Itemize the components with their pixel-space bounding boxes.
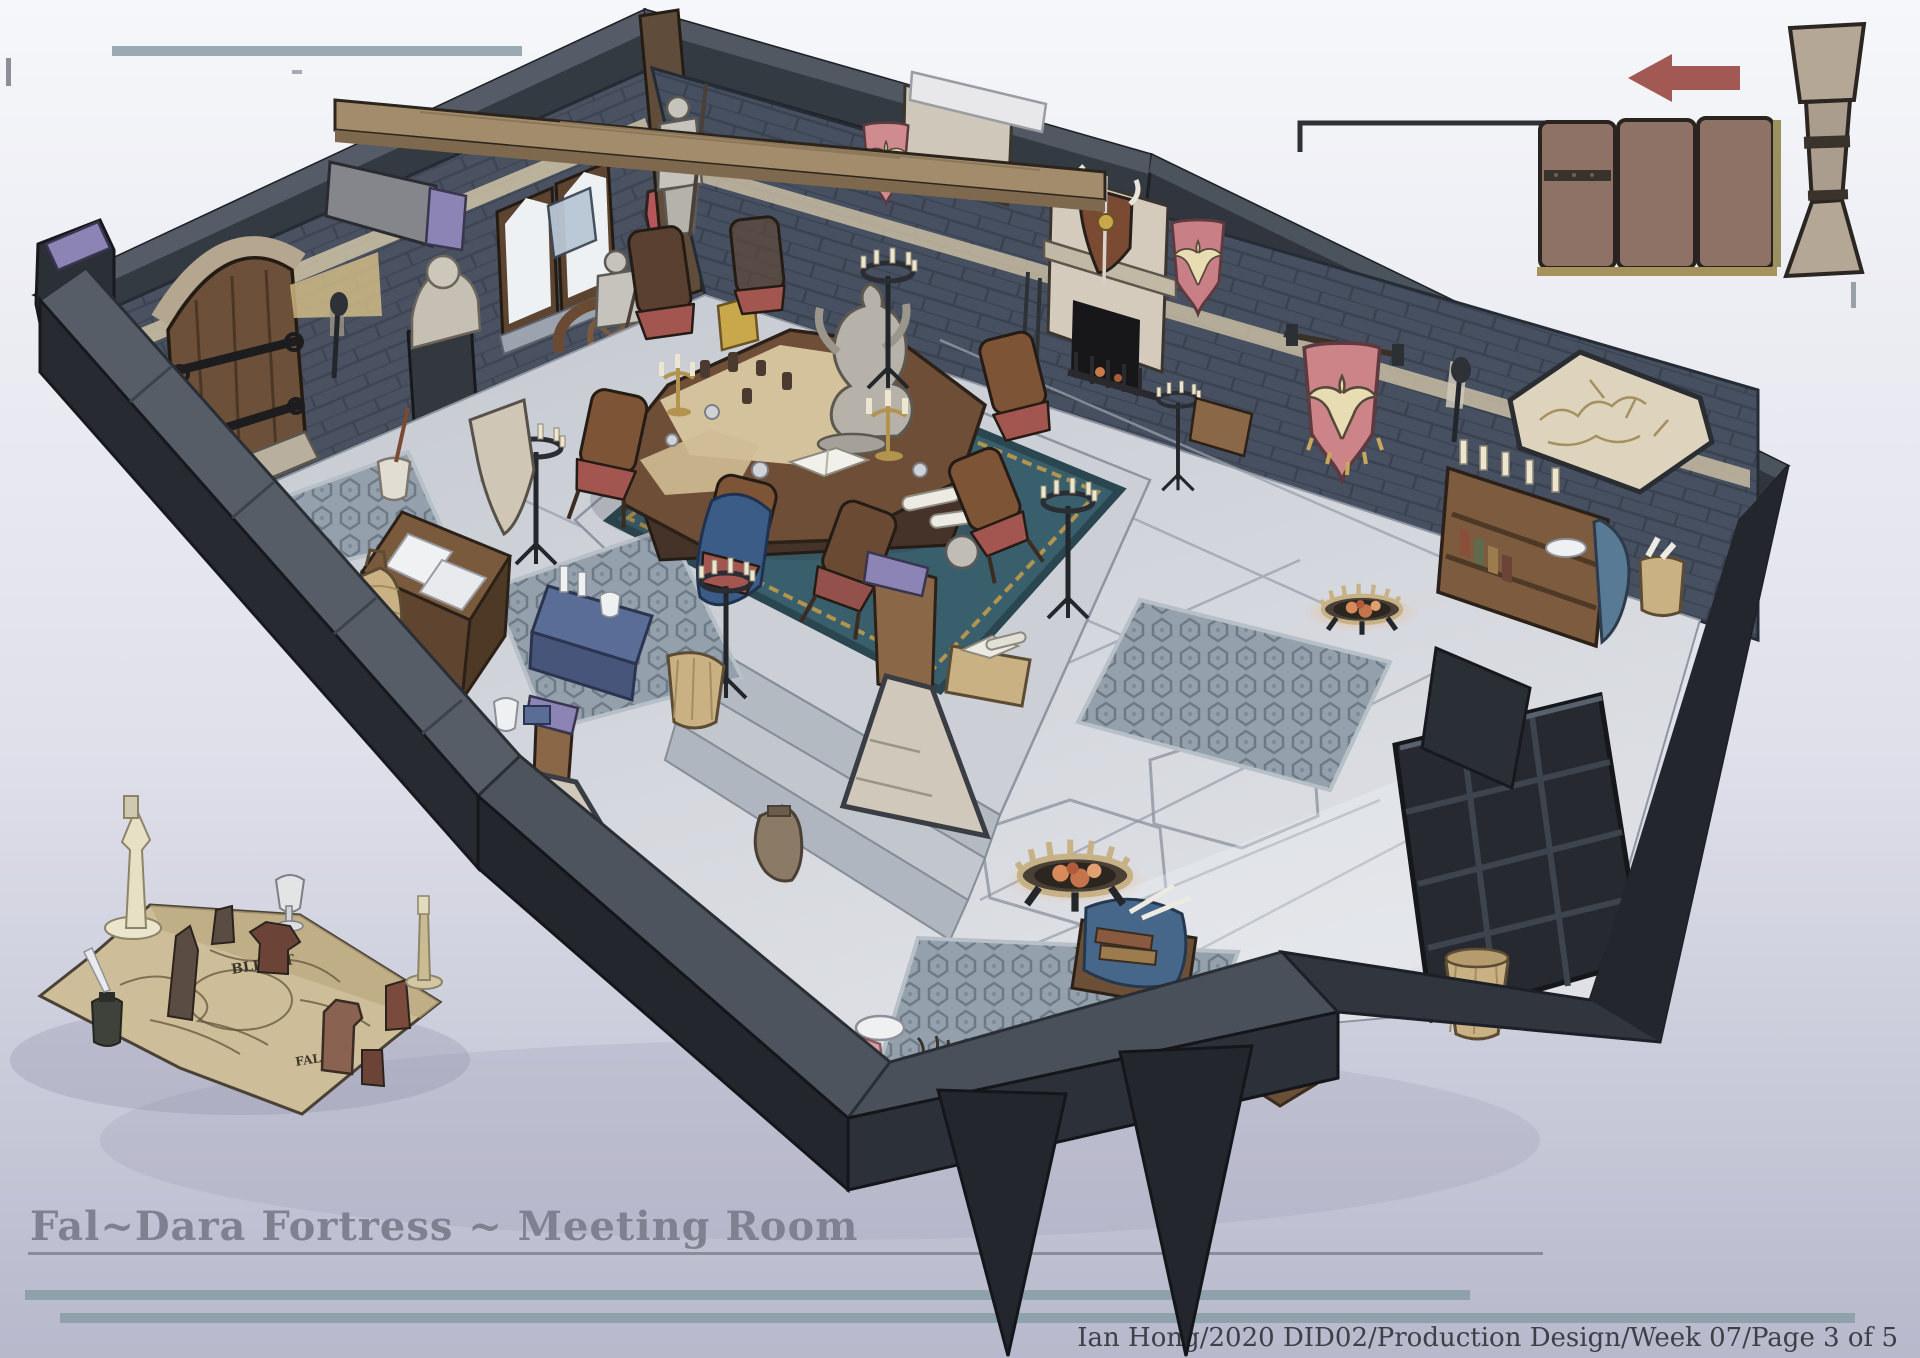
top-left-accent-bar	[112, 46, 522, 56]
pillar-waist	[1806, 100, 1850, 202]
white-dish	[856, 1016, 904, 1040]
pillar-strap-2	[1808, 189, 1848, 200]
concept-art-page: Fal~Dara Fortress ~ Meeting Room Ian Hon…	[0, 0, 1920, 1358]
left-edge-tick	[6, 58, 11, 86]
high-back-chair-2	[727, 216, 787, 315]
footer-accent-bar-2	[60, 1313, 1855, 1323]
artwork-title: Fal~Dara Fortress ~ Meeting Room	[30, 1203, 858, 1250]
purple-cut-cap	[426, 188, 466, 250]
pillar-strap-1	[1804, 135, 1850, 149]
panel-olive-strip	[1773, 120, 1781, 267]
helmet-on-table	[946, 536, 978, 568]
title-underline	[28, 1252, 1543, 1255]
white-goblet	[276, 875, 304, 931]
trophy-tassel	[1098, 214, 1114, 230]
panel-iron-bar	[1544, 170, 1611, 181]
pillar-top-cap	[1790, 24, 1864, 102]
concept-art-canvas: Fal~Dara Fortress ~ Meeting Room Ian Hon…	[0, 0, 1920, 1358]
basket-chair	[668, 653, 724, 728]
small-grey-tick	[1851, 282, 1856, 308]
footer-accent-bar-1	[25, 1290, 1470, 1300]
wall-elevation-panels	[1537, 118, 1781, 276]
bust-head	[427, 256, 459, 288]
small-knight-helmet	[605, 251, 627, 273]
small-dash-mark	[292, 70, 302, 74]
window-light-1	[505, 198, 551, 324]
white-bowl	[1546, 539, 1586, 557]
panel-baseline	[1537, 267, 1777, 276]
artist-credit: Ian Hong/2020 DID02/Production Design/We…	[1077, 1323, 1898, 1353]
